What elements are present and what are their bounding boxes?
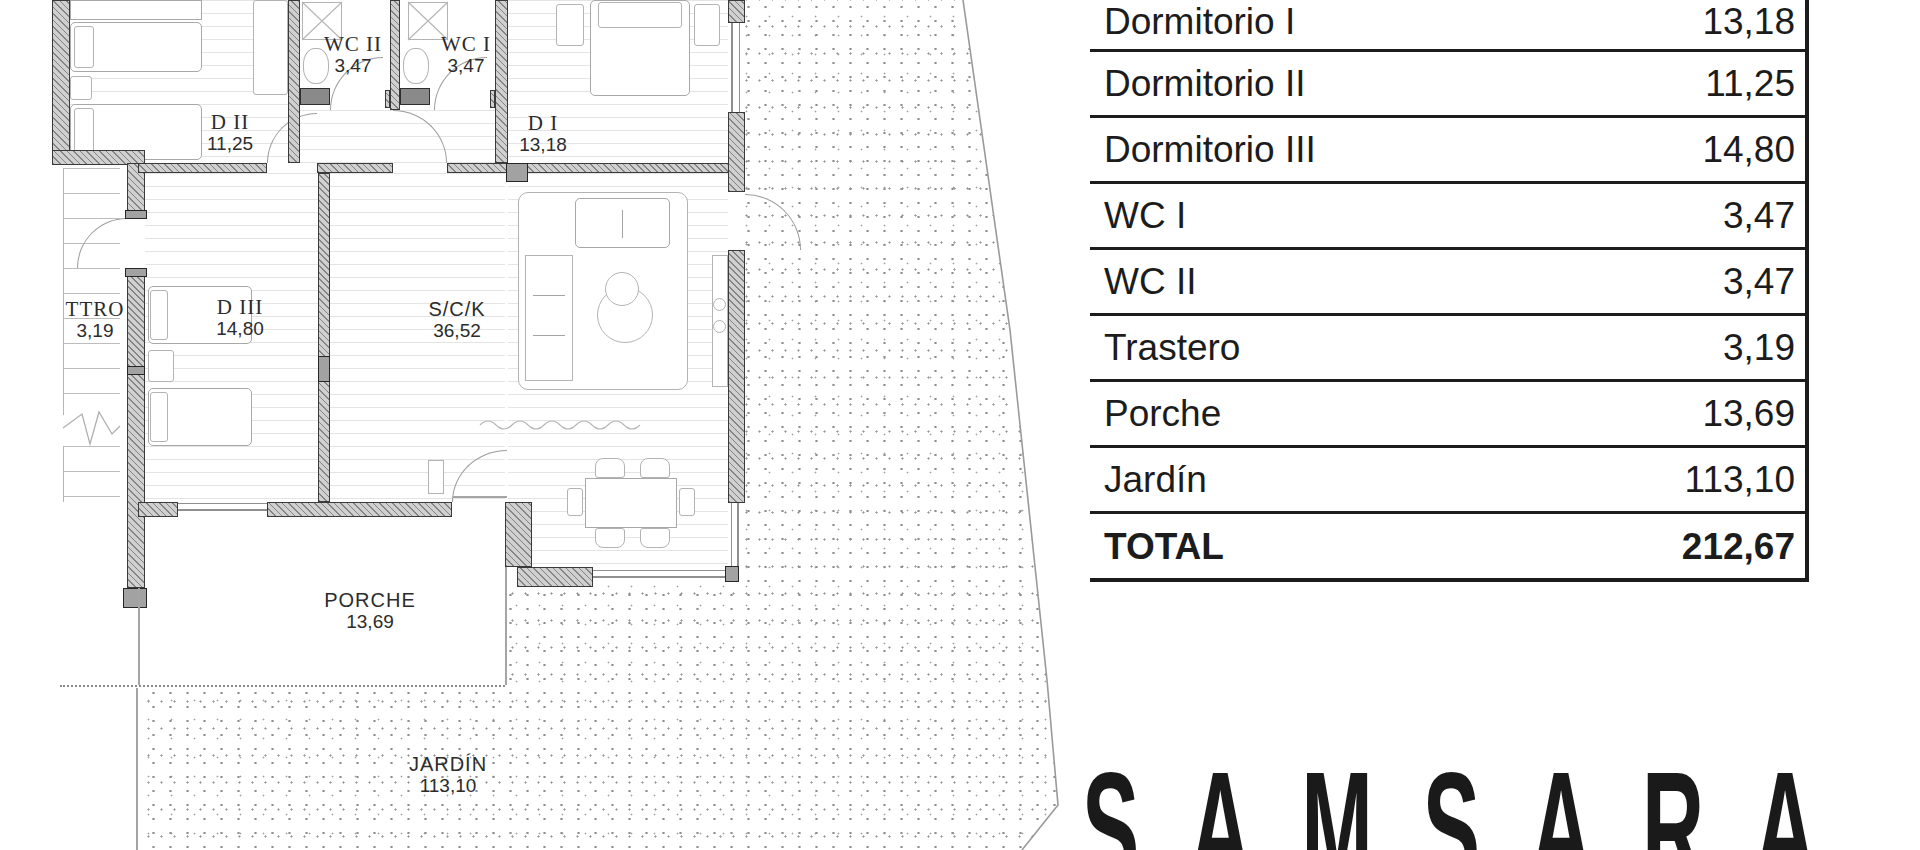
room-name: JARDÍN [409, 753, 487, 775]
row-label: TOTAL [1104, 526, 1224, 568]
row-label: Jardín [1104, 459, 1207, 501]
row-label: Porche [1104, 393, 1221, 435]
row-label: Trastero [1104, 327, 1240, 369]
surface-area-table: Dormitorio I 13,18 Dormitorio II 11,25 D… [1090, 0, 1809, 582]
room-label-sck: S/C/K 36,52 [428, 298, 485, 342]
row-value: 113,10 [1685, 459, 1795, 501]
room-area: 36,52 [428, 320, 485, 342]
table-row: Dormitorio III 14,80 [1090, 118, 1805, 184]
room-area: 13,69 [324, 611, 416, 633]
table-row: Dormitorio I 13,18 [1090, 0, 1805, 52]
room-label-d3: D III 14,80 [216, 296, 264, 340]
floor-plan-sheet: D II 11,25 WC II 3,47 WC I 3,47 D I 13,1… [0, 0, 1920, 850]
row-value: 13,18 [1702, 1, 1795, 43]
room-name: S/C/K [428, 298, 485, 320]
row-label: WC I [1104, 195, 1186, 237]
samsara-logo: SAMSARA [1082, 748, 1866, 850]
table-row: Trastero 3,19 [1090, 316, 1805, 382]
room-label-ttro: TTRO 3,19 [66, 298, 125, 342]
row-label: Dormitorio II [1104, 63, 1305, 105]
room-label-jardin: JARDÍN 113,10 [409, 753, 487, 797]
row-label: WC II [1104, 261, 1196, 303]
room-label-d2: D II 11,25 [207, 111, 253, 155]
room-name: WC I [441, 33, 491, 55]
table-row: WC II 3,47 [1090, 250, 1805, 316]
row-value: 212,67 [1682, 526, 1795, 568]
room-label-wc2: WC II 3,47 [324, 33, 382, 77]
row-value: 14,80 [1702, 129, 1795, 171]
room-name: D I [519, 112, 567, 134]
table-row: Porche 13,69 [1090, 382, 1805, 448]
room-area: 11,25 [207, 133, 253, 155]
room-area: 3,19 [66, 320, 125, 342]
table-row-total: TOTAL 212,67 [1090, 514, 1805, 580]
table-row: WC I 3,47 [1090, 184, 1805, 250]
room-label-d1: D I 13,18 [519, 112, 567, 156]
row-label: Dormitorio I [1104, 1, 1295, 43]
row-value: 3,47 [1723, 195, 1795, 237]
room-area: 3,47 [324, 55, 382, 77]
room-name: D II [207, 111, 253, 133]
row-value: 3,19 [1723, 327, 1795, 369]
row-value: 11,25 [1705, 63, 1795, 105]
row-label: Dormitorio III [1104, 129, 1316, 171]
room-name: WC II [324, 33, 382, 55]
room-area: 14,80 [216, 318, 264, 340]
room-area: 113,10 [409, 775, 487, 797]
row-value: 13,69 [1702, 393, 1795, 435]
table-row: Jardín 113,10 [1090, 448, 1805, 514]
room-name: TTRO [66, 298, 125, 320]
room-name: PORCHE [324, 589, 416, 611]
room-area: 3,47 [441, 55, 491, 77]
room-area: 13,18 [519, 134, 567, 156]
room-name: D III [216, 296, 264, 318]
row-value: 3,47 [1723, 261, 1795, 303]
room-label-wc1: WC I 3,47 [441, 33, 491, 77]
room-label-porche: PORCHE 13,69 [324, 589, 416, 633]
table-row: Dormitorio II 11,25 [1090, 52, 1805, 118]
